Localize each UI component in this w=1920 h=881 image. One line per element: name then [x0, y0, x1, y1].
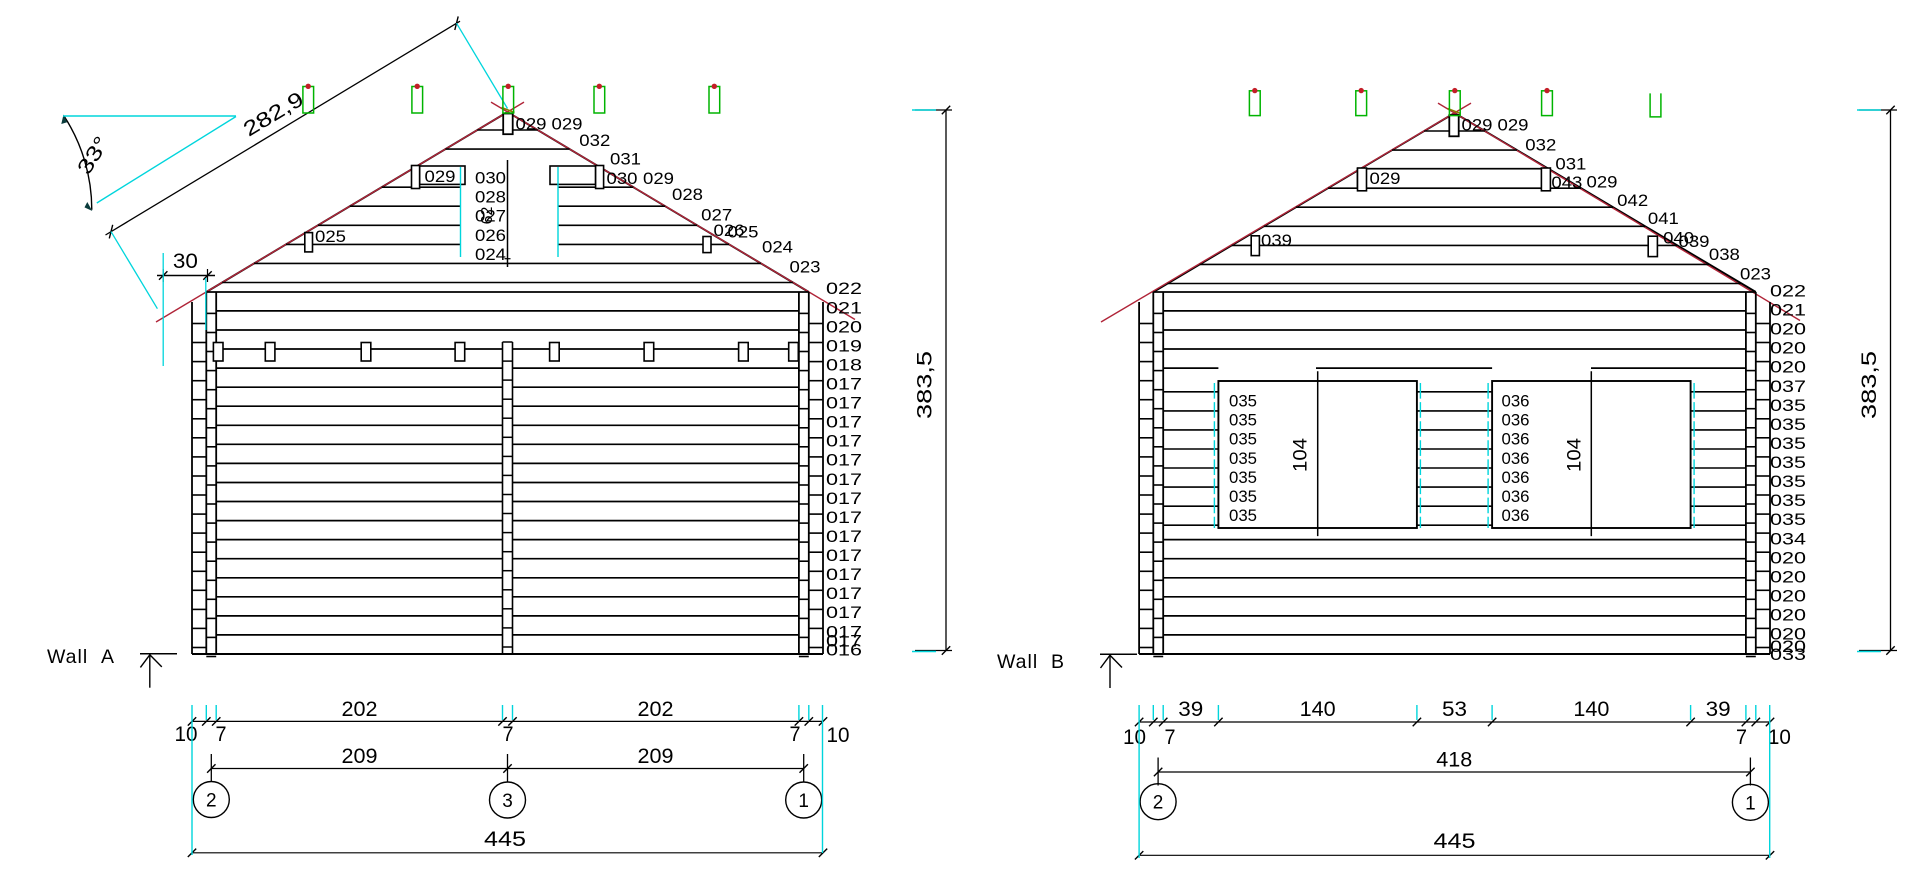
svg-text:021: 021	[1770, 301, 1806, 320]
svg-text:017: 017	[826, 432, 862, 451]
svg-text:022: 022	[826, 279, 862, 298]
svg-text:020: 020	[1770, 606, 1806, 625]
svg-text:017: 017	[826, 508, 862, 527]
svg-text:041: 041	[1648, 209, 1679, 228]
svg-text:202: 202	[638, 698, 674, 721]
svg-text:027: 027	[701, 206, 732, 225]
svg-text:035: 035	[1770, 453, 1806, 472]
svg-text:033: 033	[1770, 645, 1806, 664]
svg-text:017: 017	[826, 413, 862, 432]
svg-text:035: 035	[1770, 396, 1806, 415]
svg-text:029: 029	[1370, 169, 1401, 188]
svg-text:035: 035	[1770, 415, 1806, 434]
svg-text:383,5: 383,5	[914, 351, 937, 419]
svg-text:017: 017	[826, 565, 862, 584]
svg-text:017: 017	[826, 527, 862, 546]
svg-text:2: 2	[206, 791, 217, 812]
svg-text:036: 036	[1502, 430, 1530, 449]
svg-text:023: 023	[790, 258, 821, 277]
svg-text:019: 019	[826, 336, 862, 355]
svg-text:029: 029	[425, 167, 456, 186]
svg-text:018: 018	[826, 355, 862, 374]
svg-text:7: 7	[1165, 726, 1176, 749]
svg-text:032: 032	[1525, 136, 1556, 155]
svg-text:035: 035	[1770, 434, 1806, 453]
svg-text:020: 020	[826, 317, 862, 336]
svg-text:39: 39	[1706, 698, 1731, 721]
svg-text:035: 035	[1229, 411, 1257, 430]
svg-text:1: 1	[1745, 793, 1756, 814]
svg-text:029: 029	[516, 115, 547, 134]
svg-text:017: 017	[826, 584, 862, 603]
svg-text:035: 035	[1770, 491, 1806, 510]
svg-text:62: 62	[479, 207, 496, 225]
svg-text:039: 039	[1679, 232, 1710, 251]
svg-text:031: 031	[1555, 155, 1586, 174]
svg-text:104: 104	[1291, 438, 1312, 472]
svg-text:1: 1	[798, 791, 809, 812]
svg-text:017: 017	[826, 489, 862, 508]
svg-text:035: 035	[1229, 392, 1257, 411]
svg-text:3: 3	[502, 791, 513, 812]
svg-text:020: 020	[1770, 339, 1806, 358]
svg-text:Wall B: Wall B	[997, 651, 1065, 673]
svg-text:021: 021	[826, 298, 862, 317]
svg-text:036: 036	[1502, 506, 1530, 525]
svg-text:Wall A: Wall A	[47, 646, 115, 668]
svg-text:39: 39	[1178, 698, 1203, 721]
svg-text:30: 30	[173, 250, 198, 273]
svg-text:035: 035	[1229, 468, 1257, 487]
svg-text:7: 7	[790, 723, 801, 746]
svg-text:016: 016	[826, 641, 862, 660]
svg-text:10: 10	[175, 723, 198, 746]
svg-text:024: 024	[475, 245, 506, 264]
svg-text:036: 036	[1502, 468, 1530, 487]
svg-text:035: 035	[1770, 472, 1806, 491]
svg-text:036: 036	[1502, 487, 1530, 506]
svg-text:042: 042	[1617, 191, 1648, 210]
svg-text:031: 031	[610, 150, 641, 169]
svg-text:7: 7	[1736, 726, 1747, 749]
svg-text:10: 10	[1768, 726, 1791, 749]
svg-text:035: 035	[1229, 487, 1257, 506]
svg-text:017: 017	[826, 451, 862, 470]
svg-text:7: 7	[503, 723, 514, 746]
svg-text:017: 017	[826, 375, 862, 394]
svg-text:028: 028	[672, 185, 703, 204]
svg-text:026: 026	[475, 226, 506, 245]
svg-text:383,5: 383,5	[1858, 351, 1881, 419]
svg-text:017: 017	[826, 394, 862, 413]
svg-text:53: 53	[1442, 698, 1467, 721]
svg-text:037: 037	[1770, 377, 1806, 396]
svg-text:140: 140	[1300, 698, 1336, 721]
svg-text:024: 024	[762, 238, 793, 257]
svg-text:029: 029	[1498, 116, 1529, 135]
svg-text:020: 020	[1770, 548, 1806, 567]
svg-text:029: 029	[552, 115, 583, 134]
svg-text:209: 209	[342, 745, 378, 768]
svg-text:035: 035	[1770, 510, 1806, 529]
svg-text:036: 036	[1502, 411, 1530, 430]
svg-text:202: 202	[342, 698, 378, 721]
svg-text:022: 022	[1770, 282, 1806, 301]
svg-text:029: 029	[1587, 173, 1618, 192]
svg-text:038: 038	[1709, 245, 1740, 264]
svg-text:017: 017	[826, 470, 862, 489]
svg-text:023: 023	[1740, 265, 1771, 284]
svg-text:036: 036	[1502, 449, 1530, 468]
svg-text:10: 10	[827, 724, 850, 747]
svg-text:039: 039	[1261, 231, 1292, 250]
svg-text:025: 025	[728, 223, 759, 242]
svg-text:036: 036	[1502, 392, 1530, 411]
svg-text:418: 418	[1436, 749, 1472, 772]
svg-text:035: 035	[1229, 449, 1257, 468]
svg-text:034: 034	[1770, 529, 1806, 548]
svg-text:017: 017	[826, 546, 862, 565]
svg-text:10: 10	[1123, 726, 1146, 749]
svg-text:7: 7	[216, 723, 227, 746]
svg-text:445: 445	[1434, 830, 1476, 853]
svg-text:025: 025	[315, 227, 346, 246]
svg-text:020: 020	[1770, 587, 1806, 606]
svg-text:020: 020	[1770, 320, 1806, 339]
svg-text:030: 030	[607, 169, 638, 188]
svg-text:035: 035	[1229, 430, 1257, 449]
svg-text:030: 030	[475, 169, 506, 188]
svg-text:2: 2	[1153, 793, 1164, 814]
svg-text:032: 032	[579, 131, 610, 150]
svg-text:020: 020	[1770, 567, 1806, 586]
svg-text:029: 029	[643, 169, 674, 188]
svg-text:020: 020	[1770, 358, 1806, 377]
svg-text:104: 104	[1564, 438, 1585, 472]
svg-text:029: 029	[1462, 116, 1493, 135]
svg-text:140: 140	[1573, 698, 1609, 721]
svg-text:043: 043	[1551, 173, 1582, 192]
svg-text:028: 028	[475, 188, 506, 207]
svg-text:035: 035	[1229, 506, 1257, 525]
svg-text:209: 209	[638, 745, 674, 768]
svg-text:445: 445	[484, 828, 526, 851]
svg-text:017: 017	[826, 603, 862, 622]
